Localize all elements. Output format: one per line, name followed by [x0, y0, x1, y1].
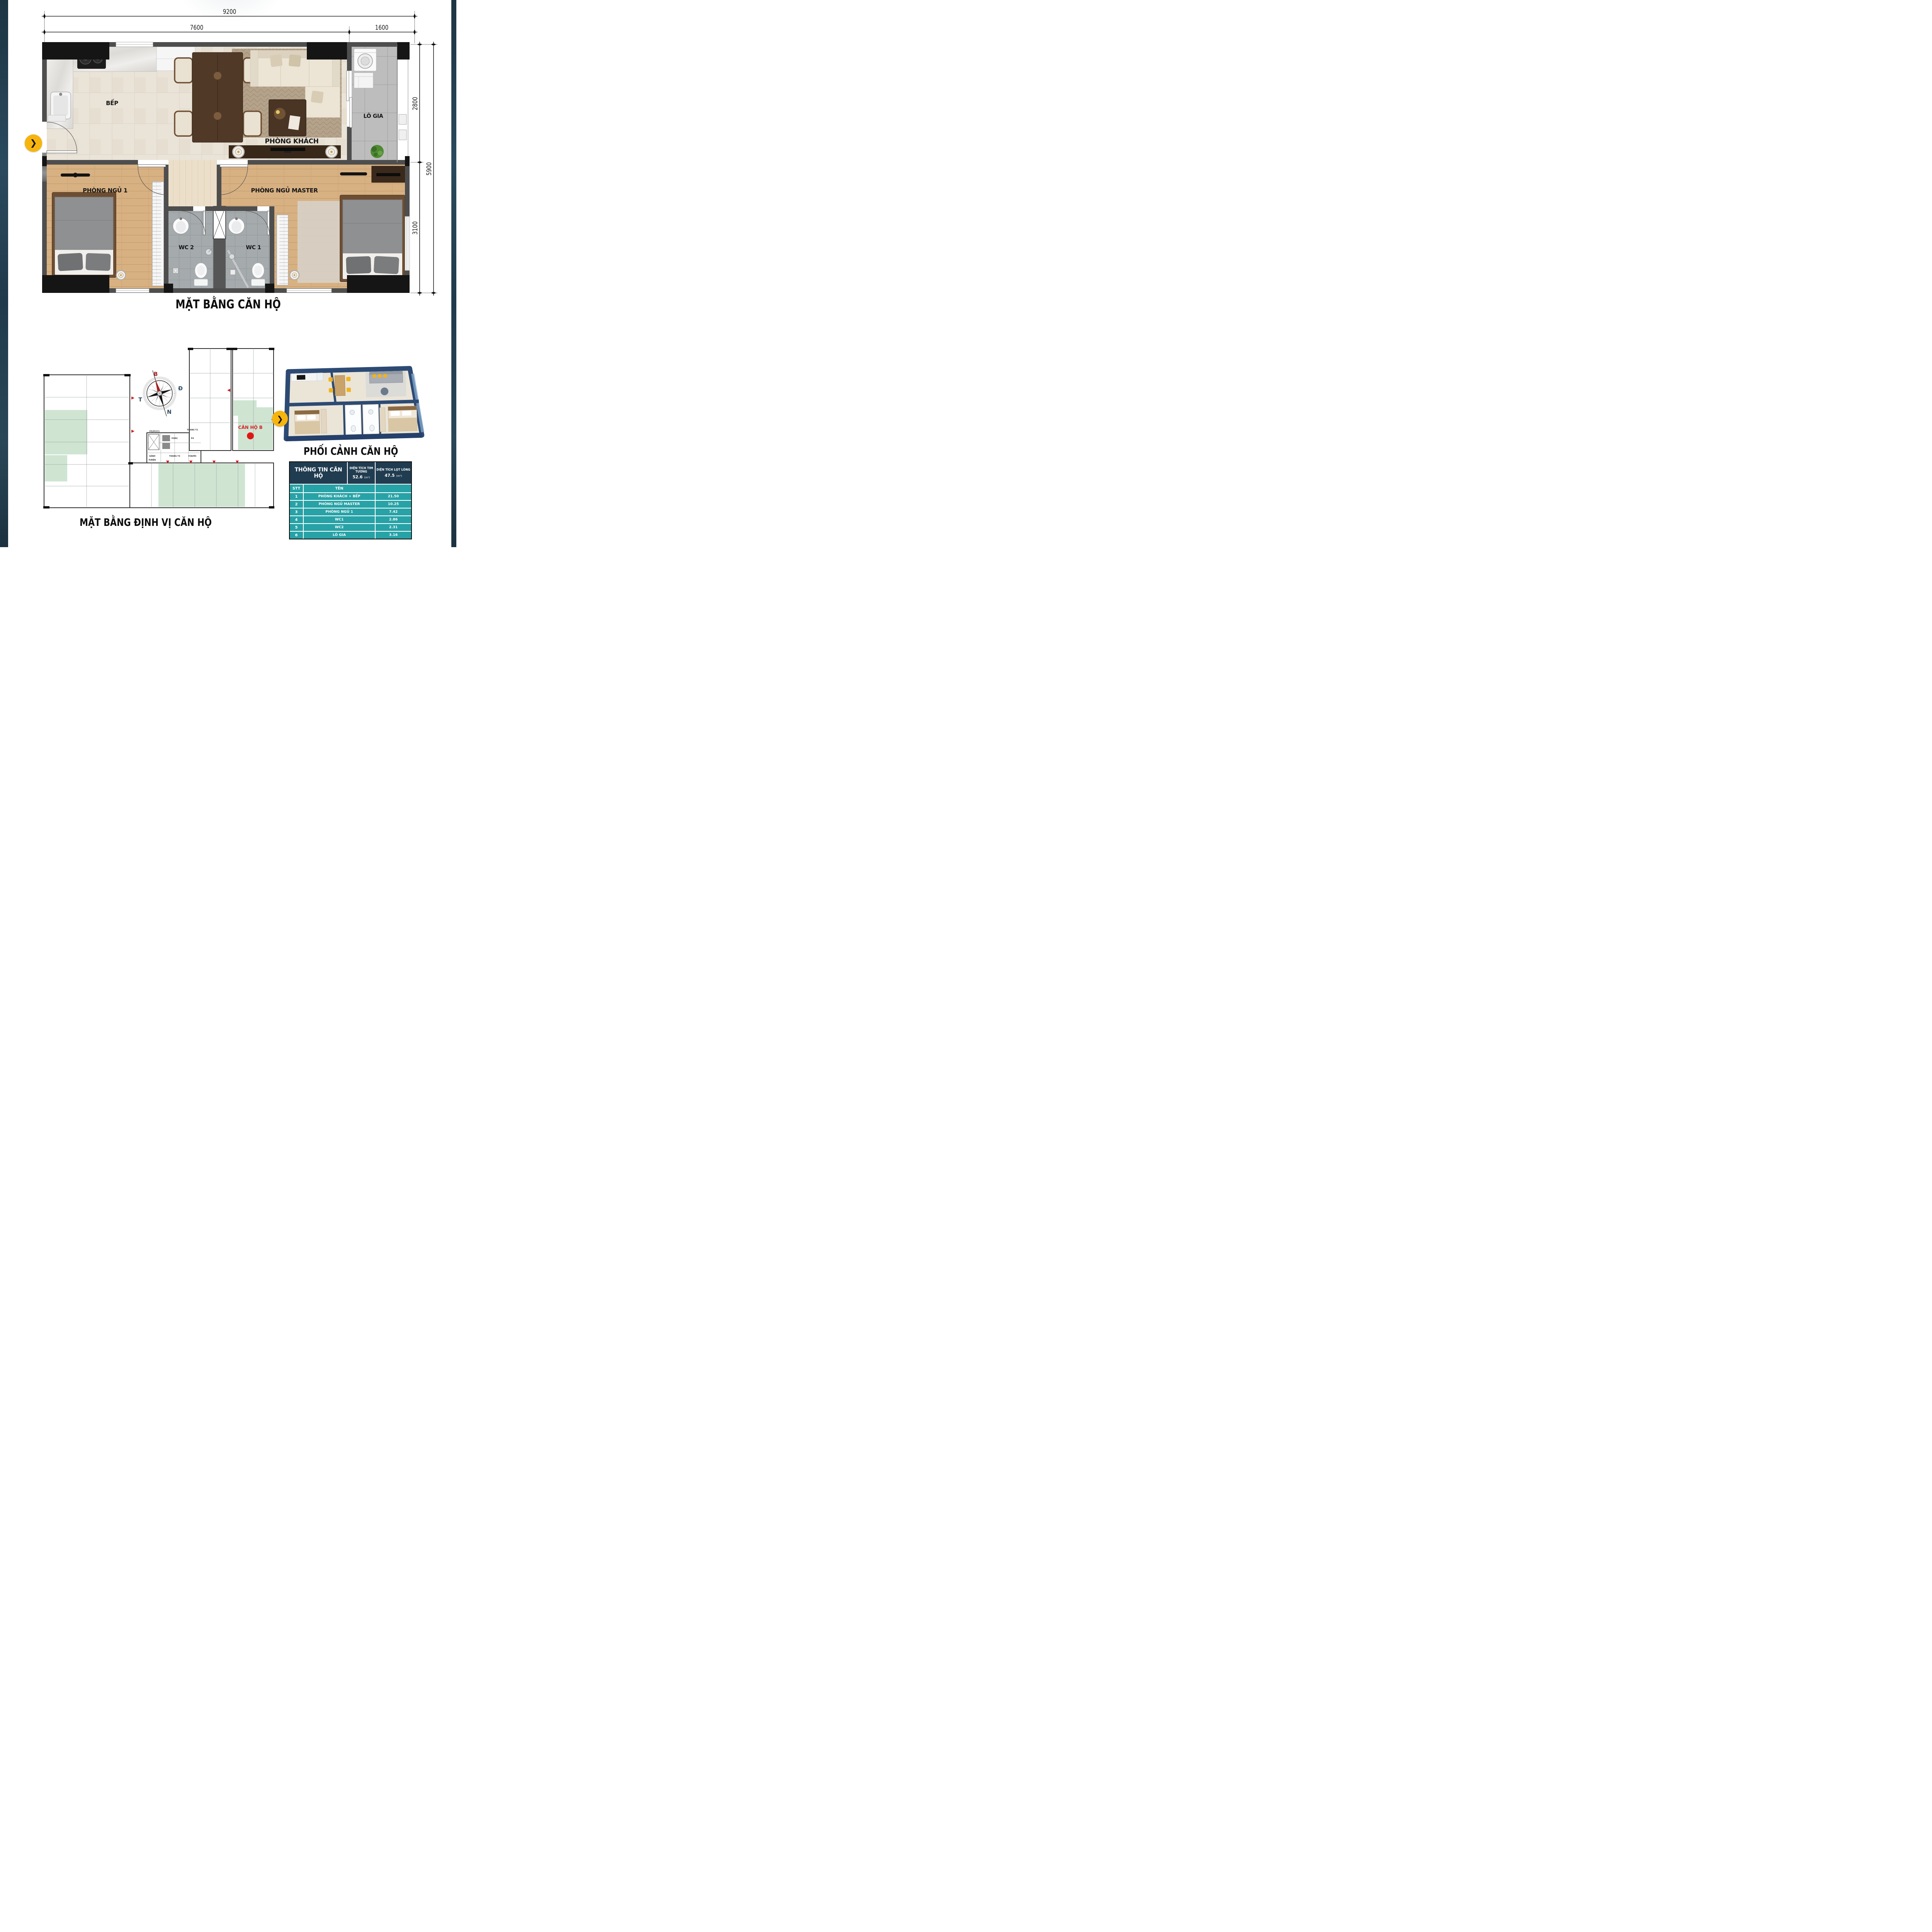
bedroom1-label: PHÒNG NGỦ 1	[83, 186, 128, 194]
table-row: 3 PHÒNG NGỦ 1 7.42	[290, 509, 411, 515]
wc1-label: WC 1	[246, 245, 261, 251]
floor-plan-title: MẶT BẰNG CĂN HỘ	[41, 298, 415, 311]
table-row: 4 WC1 2.86	[290, 516, 411, 523]
dim-bedroom-depth: 3100	[412, 221, 419, 235]
unit-info-table: THÔNG TIN CĂN HỘ DIỆN TÍCH TIM TƯỜNG 52.…	[289, 461, 412, 539]
core-label: P.ĐIỆN	[149, 458, 156, 461]
wc2-label: WC 2	[179, 245, 194, 251]
perspective-arrow-button[interactable]: ❯	[272, 411, 288, 427]
compass-south: N	[167, 409, 172, 415]
site-location-plan: THANG T2 P5(PCCC) SẢNH P.RÁC P4 P.ĐIỆN T…	[39, 342, 274, 512]
dim-overall-width: 9200	[223, 8, 236, 16]
table-header-row: THÔNG TIN CĂN HỘ DIỆN TÍCH TIM TƯỜNG 52.…	[290, 462, 411, 484]
page: 9200 7600 1600 2800 3100 5900	[0, 0, 456, 547]
living-label: PHÒNG KHÁCH	[265, 137, 318, 145]
entry-arrow-button[interactable]: ❯	[25, 134, 42, 152]
loggia-label: LÔ GIA	[364, 112, 383, 119]
table-row: 6 LÔ GIA 3.16	[290, 532, 411, 539]
core-label: P.NƯỚC	[188, 455, 196, 457]
compass-north: B	[154, 371, 158, 378]
unit-b-label: CĂN HỘ B	[238, 424, 262, 430]
core-label: P5(PCCC)	[150, 430, 160, 433]
unit-b-dot	[247, 432, 254, 439]
core-label: SẢNH	[149, 454, 155, 457]
core-label: P4	[191, 437, 194, 440]
core-label: THANG T3	[169, 455, 180, 457]
col-blank	[376, 485, 411, 492]
table-row: 5 WC2 2.31	[290, 524, 411, 531]
kitchen-label: BẾP	[106, 99, 118, 107]
dim-overall-depth: 5900	[425, 162, 433, 176]
area-column-tim-tuong: DIỆN TÍCH TIM TƯỜNG 52.6(m²)	[348, 462, 375, 484]
site-plan-title: MẶT BẰNG ĐỊNH VỊ CĂN HỘ	[26, 517, 265, 529]
dim-living-depth: 2800	[412, 97, 419, 111]
chevron-right-icon: ❯	[30, 138, 37, 148]
apartment-floor-plan: 9200 7600 1600 2800 3100 5900	[0, 0, 456, 313]
core-label: THANG T2	[187, 429, 198, 431]
dim-loggia-width: 1600	[375, 24, 389, 32]
table-subheader-row: STT TÊN	[290, 485, 411, 492]
col-ten: TÊN	[304, 485, 375, 492]
dim-main-width: 7600	[190, 24, 204, 32]
master-bedroom-label: PHÒNG NGỦ MASTER	[251, 186, 318, 194]
area-column-lot-long: DIỆN TÍCH LỌT LÒNG 47.5(m²)	[376, 462, 411, 484]
table-row: 2 PHÒNG NGỦ MASTER 10.25	[290, 501, 411, 508]
chevron-right-icon: ❯	[277, 414, 283, 423]
table-row: 1 PHÒNG KHÁCH + BẾP 21.50	[290, 493, 411, 500]
perspective-title: PHỐI CẢNH CĂN HỘ	[291, 446, 411, 457]
col-stt: STT	[290, 485, 303, 492]
compass-west: T	[138, 397, 142, 403]
table-title: THÔNG TIN CĂN HỘ	[290, 462, 347, 484]
compass-east: Đ	[178, 386, 183, 392]
compass: B Đ T N	[138, 367, 183, 420]
apartment-3d-view	[276, 359, 432, 451]
core-label: P.RÁC	[172, 437, 178, 440]
